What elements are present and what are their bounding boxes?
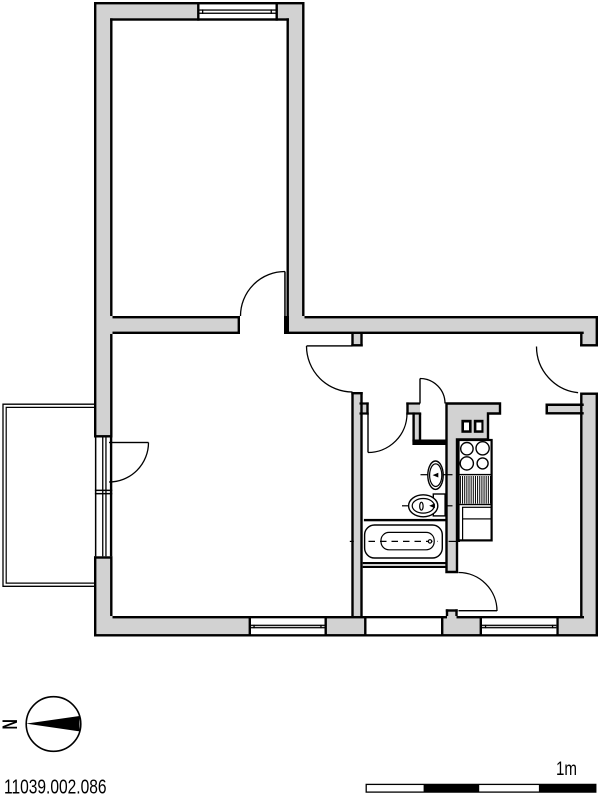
svg-text:1m: 1m (556, 758, 577, 780)
svg-text:N: N (0, 719, 22, 729)
svg-text:11039.002.086: 11039.002.086 (4, 777, 107, 799)
